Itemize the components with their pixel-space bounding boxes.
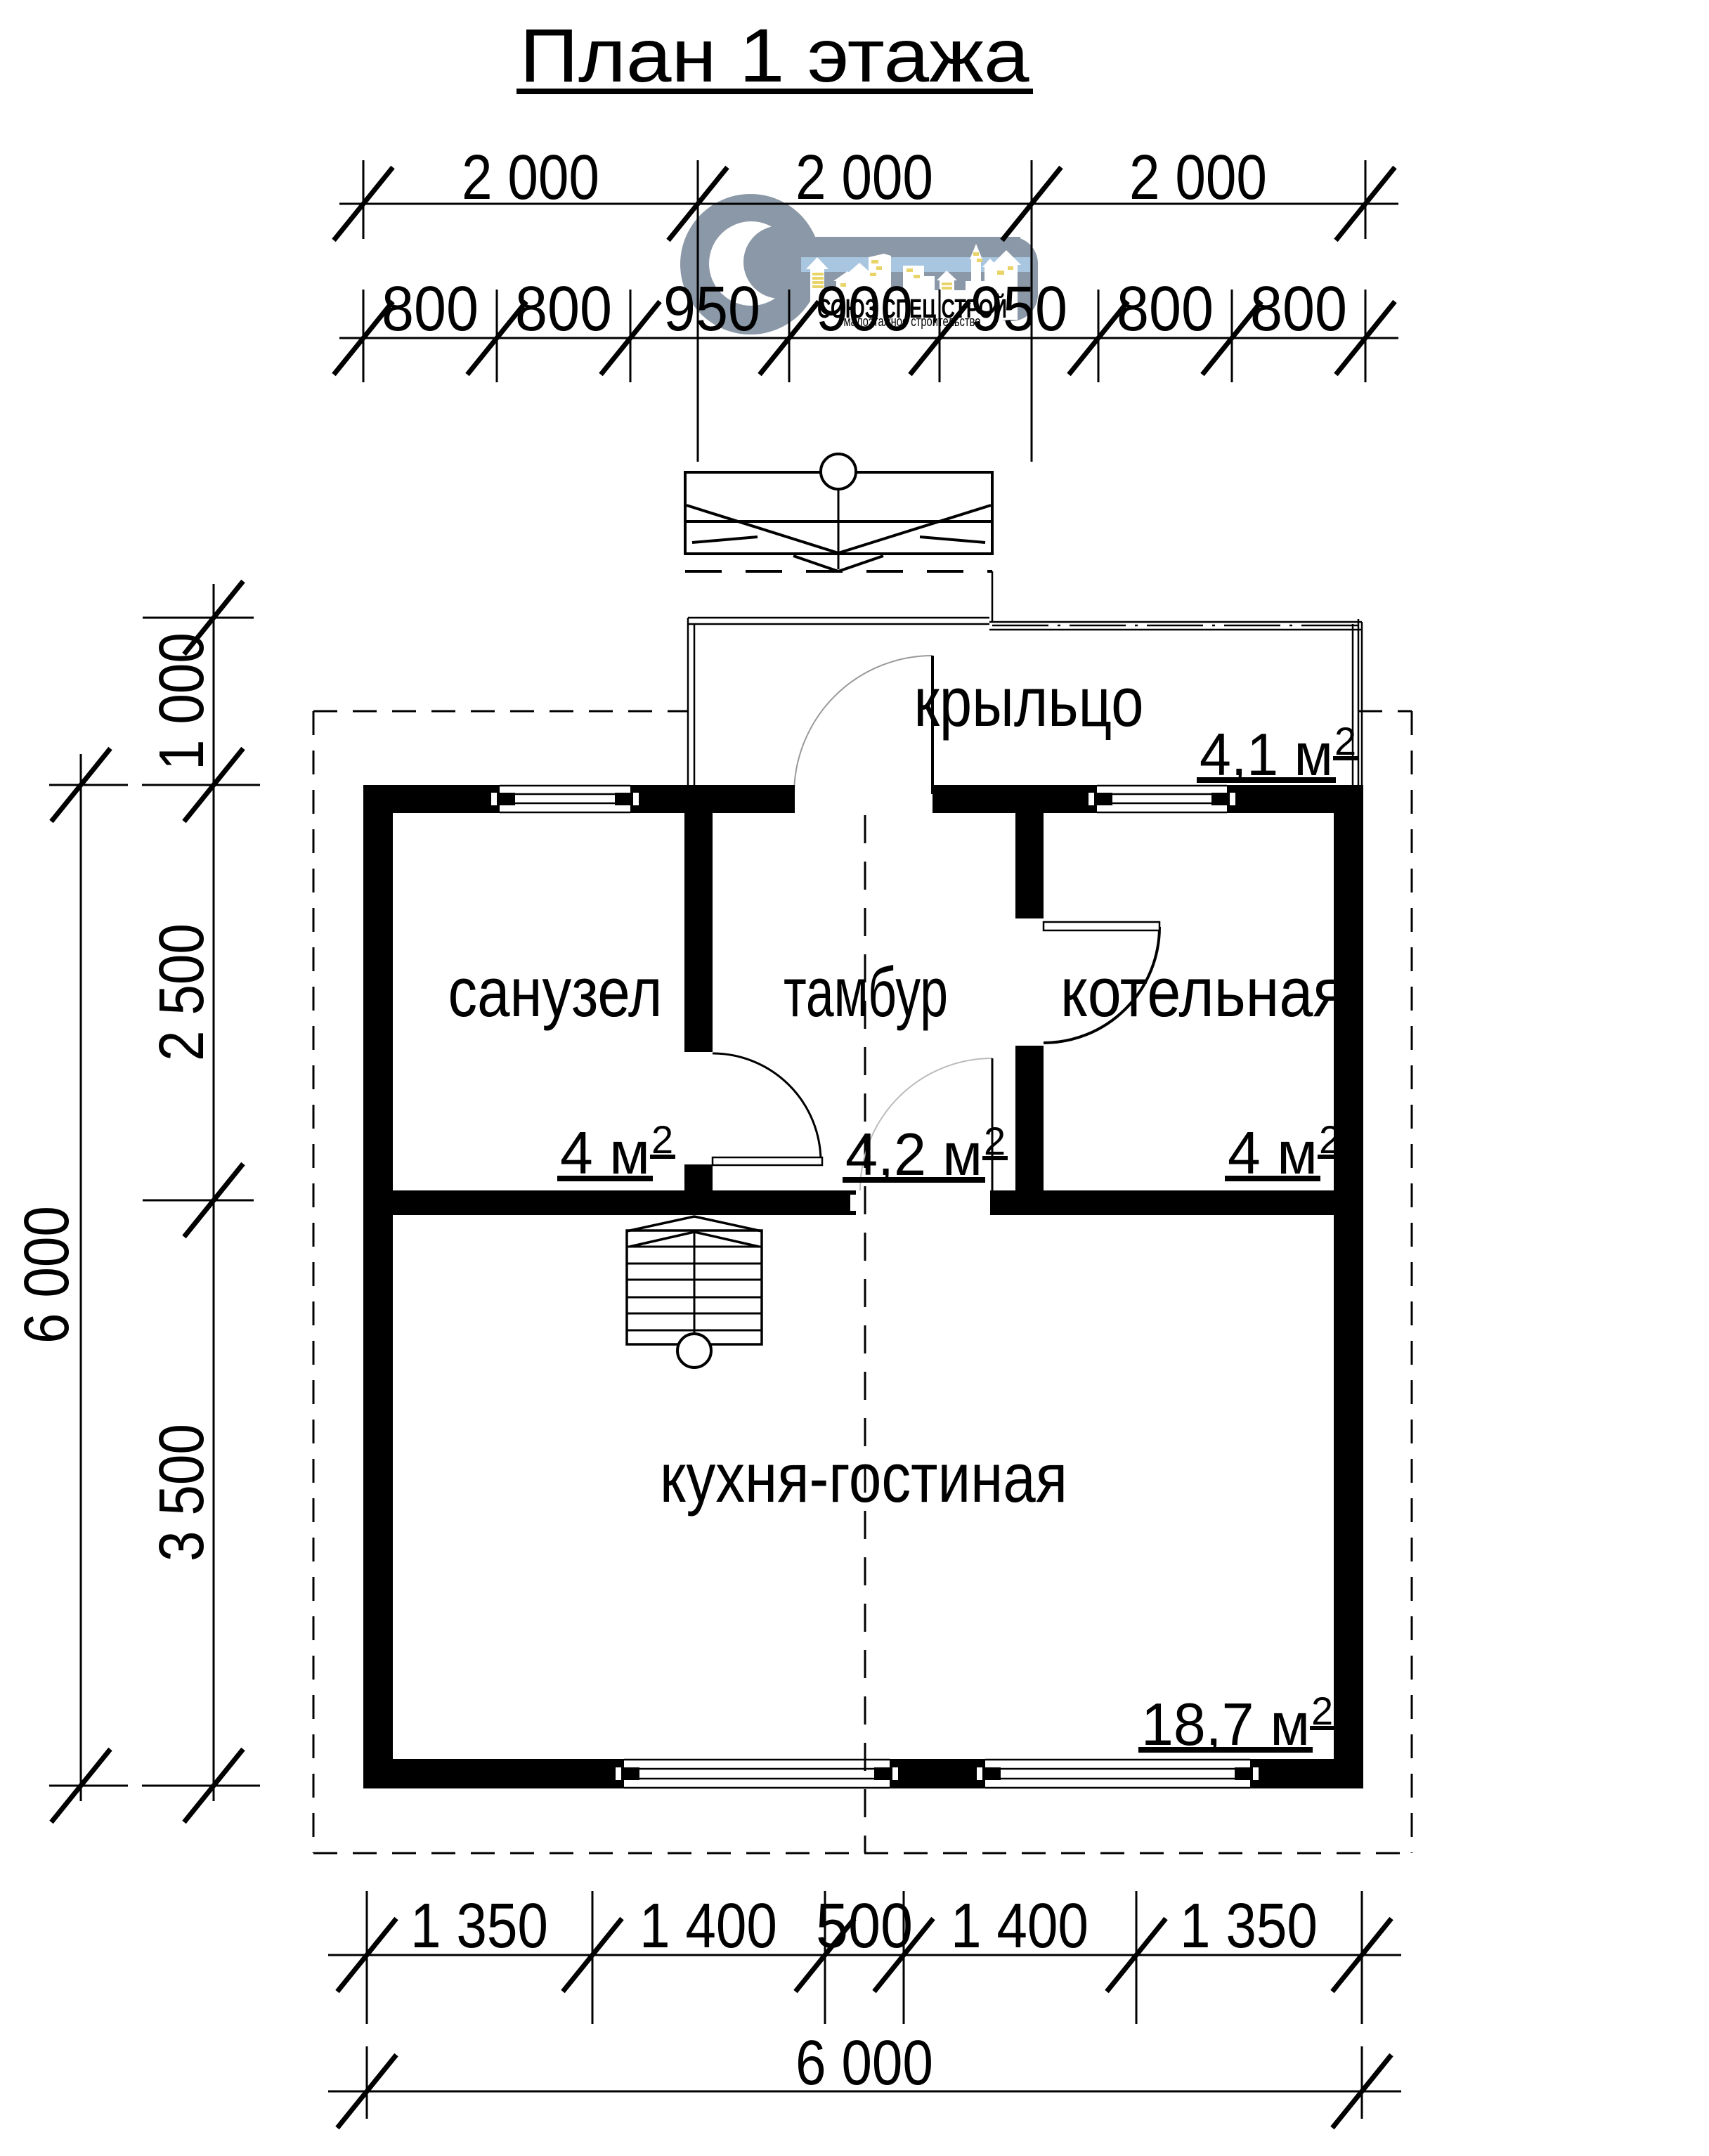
svg-text:800: 800 xyxy=(1117,274,1214,344)
svg-text:950: 950 xyxy=(663,274,760,344)
svg-text:котельная: котельная xyxy=(1060,953,1346,1031)
svg-text:санузел: санузел xyxy=(448,953,663,1031)
svg-text:1 350: 1 350 xyxy=(1180,1891,1318,1961)
svg-text:800: 800 xyxy=(515,274,612,344)
svg-text:крыльцо: крыльцо xyxy=(914,663,1144,741)
svg-text:кухня-гостиная: кухня-гостиная xyxy=(660,1439,1067,1517)
svg-text:тамбур: тамбур xyxy=(784,953,948,1031)
svg-text:6 000: 6 000 xyxy=(795,2028,933,2098)
svg-text:1 350: 1 350 xyxy=(410,1891,548,1961)
svg-text:1 400: 1 400 xyxy=(639,1891,777,1961)
svg-text:2 500: 2 500 xyxy=(147,923,217,1061)
svg-text:2 000: 2 000 xyxy=(1129,143,1267,213)
svg-text:1 000: 1 000 xyxy=(147,632,217,770)
svg-text:План 1 этажа: План 1 этажа xyxy=(520,13,1030,98)
svg-text:800: 800 xyxy=(382,274,479,344)
svg-text:3 500: 3 500 xyxy=(147,1424,217,1561)
svg-text:6 000: 6 000 xyxy=(12,1206,82,1344)
svg-text:2 000: 2 000 xyxy=(795,143,933,213)
svg-text:800: 800 xyxy=(1250,274,1347,344)
svg-text:900: 900 xyxy=(816,274,913,344)
svg-text:2 000: 2 000 xyxy=(462,143,599,213)
svg-text:950: 950 xyxy=(970,274,1067,344)
svg-text:1 400: 1 400 xyxy=(951,1891,1089,1961)
svg-text:500: 500 xyxy=(816,1891,913,1961)
